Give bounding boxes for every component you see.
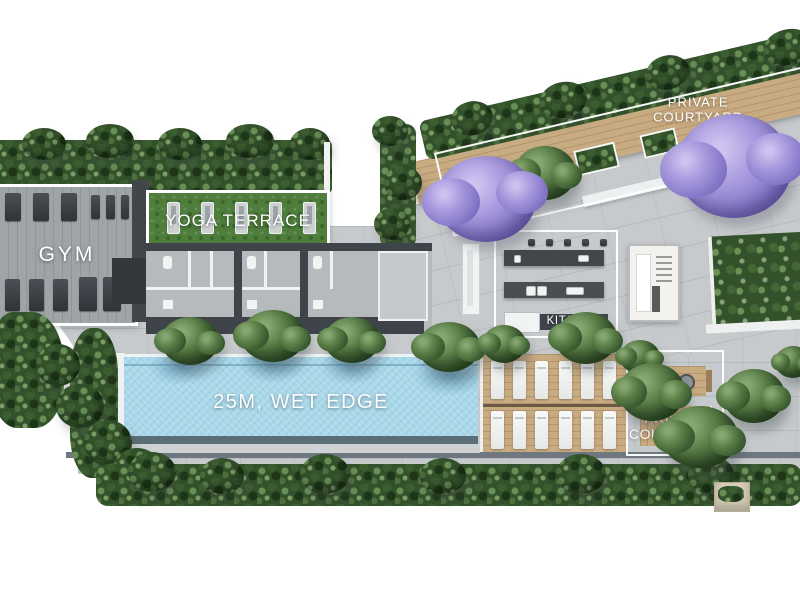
kitchen-stool xyxy=(582,239,589,246)
tree xyxy=(241,310,305,362)
counter-item xyxy=(578,255,589,262)
planter-box-bottom xyxy=(714,482,750,512)
sink xyxy=(162,299,174,310)
counter-item xyxy=(514,255,521,263)
hedge-left-bush xyxy=(36,344,80,386)
rooms-wall xyxy=(210,251,213,289)
hedge-top-bump xyxy=(226,124,274,158)
sun-lounger xyxy=(559,411,572,449)
pool-label: 25M, WET EDGE xyxy=(124,391,478,414)
gym-bike xyxy=(121,195,129,219)
stair-step xyxy=(656,262,672,264)
pool-lane-line xyxy=(124,364,478,366)
pool-ledge-bottom xyxy=(108,444,480,453)
rooms-partition xyxy=(300,251,308,317)
kitchen-counter-top xyxy=(504,250,604,266)
sun-lounger xyxy=(513,361,526,399)
rooms-large-room xyxy=(378,251,428,321)
hedge-column-bump xyxy=(384,166,422,200)
hedge-top-bump xyxy=(22,128,66,160)
stair-riser xyxy=(652,286,660,312)
kitchen-stool xyxy=(528,239,535,246)
counter-item xyxy=(566,287,584,295)
hedge-bottom-bump xyxy=(300,454,350,494)
rooms-wall xyxy=(242,287,300,290)
stair-step xyxy=(656,268,672,270)
sun-deck-seam xyxy=(483,404,621,407)
tree xyxy=(161,317,219,365)
gym-machine xyxy=(53,279,68,311)
gym-bike xyxy=(106,195,115,219)
hedge-bottom-bump xyxy=(200,458,244,494)
tree xyxy=(662,406,738,468)
kitchen-stool xyxy=(600,239,607,246)
hedge-top-bump xyxy=(158,128,202,160)
gym-machine xyxy=(79,277,97,311)
kitchen-sink xyxy=(526,286,536,296)
pool-wet-edge xyxy=(124,436,478,444)
rooms-partition xyxy=(234,251,242,317)
amenity-floor-plan: PRIVATE COURTYARD GYM YOGA TERRACE xyxy=(0,0,800,600)
rooms-wall xyxy=(188,251,191,289)
tree xyxy=(723,369,785,423)
stair-landing xyxy=(636,254,651,312)
kitchen-stool xyxy=(546,239,553,246)
gym-treadmill xyxy=(33,193,49,221)
hedge-column-bump xyxy=(372,116,408,146)
yoga-terrace-label: YOGA TERRACE xyxy=(149,211,327,231)
private-courtyard-top-line1: PRIVATE xyxy=(633,96,763,111)
sink xyxy=(246,299,258,310)
rooms-top-wall xyxy=(146,243,432,251)
kitchen-stool xyxy=(564,239,571,246)
toilet xyxy=(246,255,257,270)
sun-lounger xyxy=(581,361,594,399)
rooms-wall xyxy=(330,251,333,289)
stair-step xyxy=(656,280,672,282)
stair-step xyxy=(656,274,672,276)
platform-side xyxy=(706,370,712,392)
hedge-column-bump xyxy=(374,208,410,240)
sun-lounger xyxy=(513,411,526,449)
gym-treadmill xyxy=(5,193,21,221)
tree xyxy=(555,312,617,364)
stair-step xyxy=(656,256,672,258)
tree xyxy=(418,322,480,372)
hedge-bottom-bump xyxy=(420,458,466,494)
sun-deck xyxy=(480,354,627,452)
sun-lounger xyxy=(491,411,504,449)
gym-bike xyxy=(91,195,100,219)
toilet xyxy=(312,255,323,270)
sun-lounger xyxy=(581,411,594,449)
sink xyxy=(312,299,324,310)
kitchen-sink xyxy=(537,286,547,296)
hedge-top-bump xyxy=(86,124,134,158)
gym-machine xyxy=(5,279,20,311)
sun-lounger xyxy=(535,411,548,449)
rooms-wall xyxy=(264,251,267,289)
kitchen-counter-island xyxy=(504,282,604,298)
hedge-end-wall xyxy=(324,142,330,196)
sun-lounger xyxy=(603,411,616,449)
tree xyxy=(324,317,380,363)
jacaranda-tree xyxy=(676,114,792,218)
rooms-wall xyxy=(146,287,234,290)
sun-lounger xyxy=(535,361,548,399)
sun-lounger xyxy=(559,361,572,399)
bench xyxy=(462,243,480,315)
hedge-bottom-bump xyxy=(128,452,176,492)
garden-right xyxy=(708,231,800,328)
gym-dark-block xyxy=(112,258,146,304)
gym-machine xyxy=(29,279,44,311)
planter-plants xyxy=(718,486,744,502)
hedge-bottom-bump xyxy=(556,454,606,494)
pool-area: 25M, WET EDGE xyxy=(124,354,478,439)
bench-inner xyxy=(467,250,473,306)
staircase xyxy=(628,244,680,322)
jacaranda-tree xyxy=(436,156,536,242)
sun-lounger xyxy=(491,361,504,399)
gym-treadmill xyxy=(61,193,77,221)
tree xyxy=(482,325,526,363)
gym-area: GYM xyxy=(0,184,138,326)
toilet xyxy=(162,255,173,270)
